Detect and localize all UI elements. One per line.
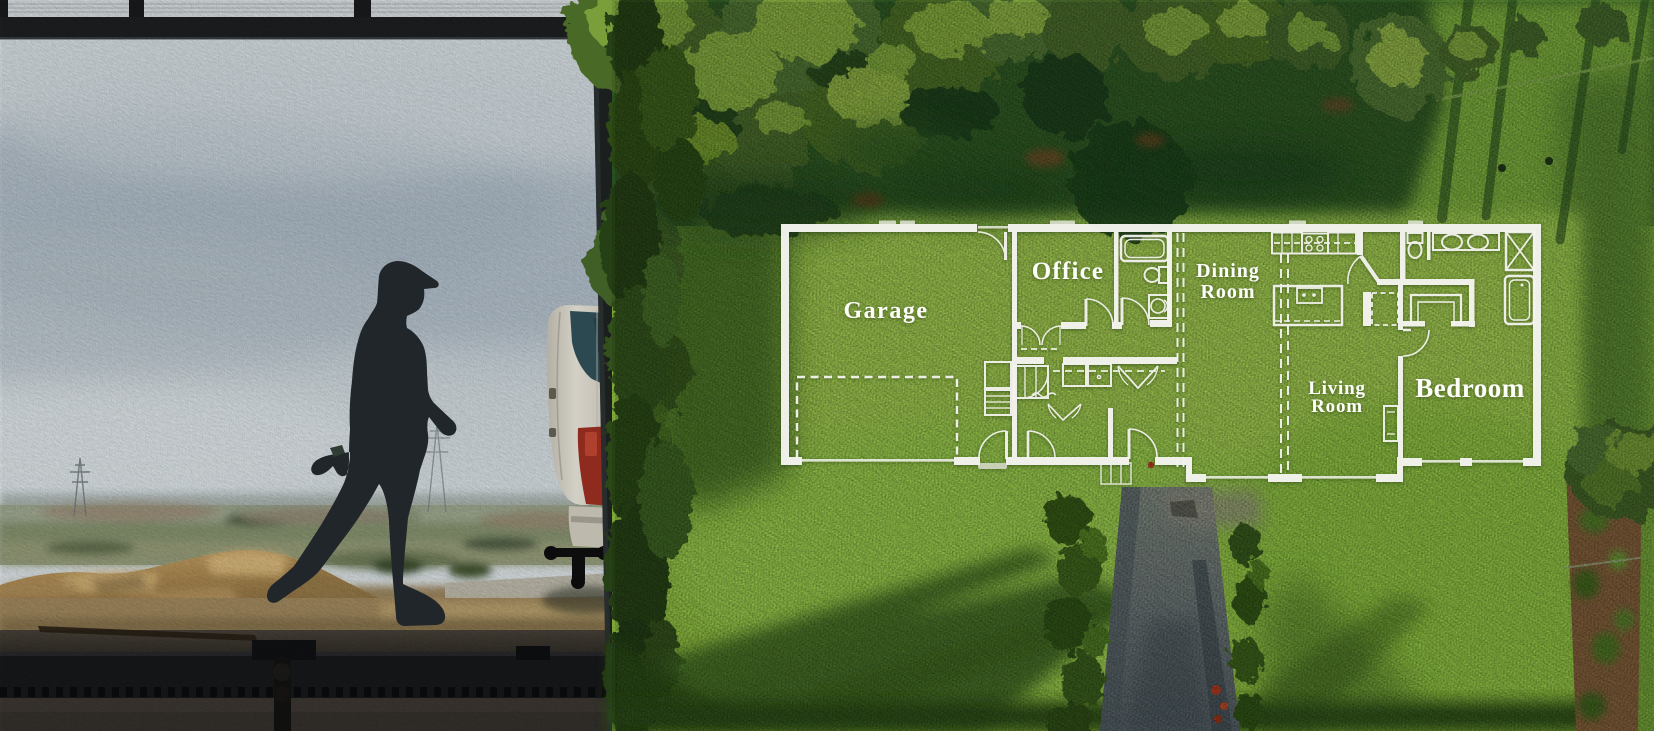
svg-text:Office: Office bbox=[1032, 258, 1104, 285]
svg-text:Room: Room bbox=[1311, 396, 1363, 417]
svg-text:Garage: Garage bbox=[844, 298, 929, 324]
svg-text:Bedroom: Bedroom bbox=[1415, 373, 1525, 403]
svg-text:Dining: Dining bbox=[1196, 260, 1260, 282]
svg-text:Room: Room bbox=[1200, 281, 1255, 303]
